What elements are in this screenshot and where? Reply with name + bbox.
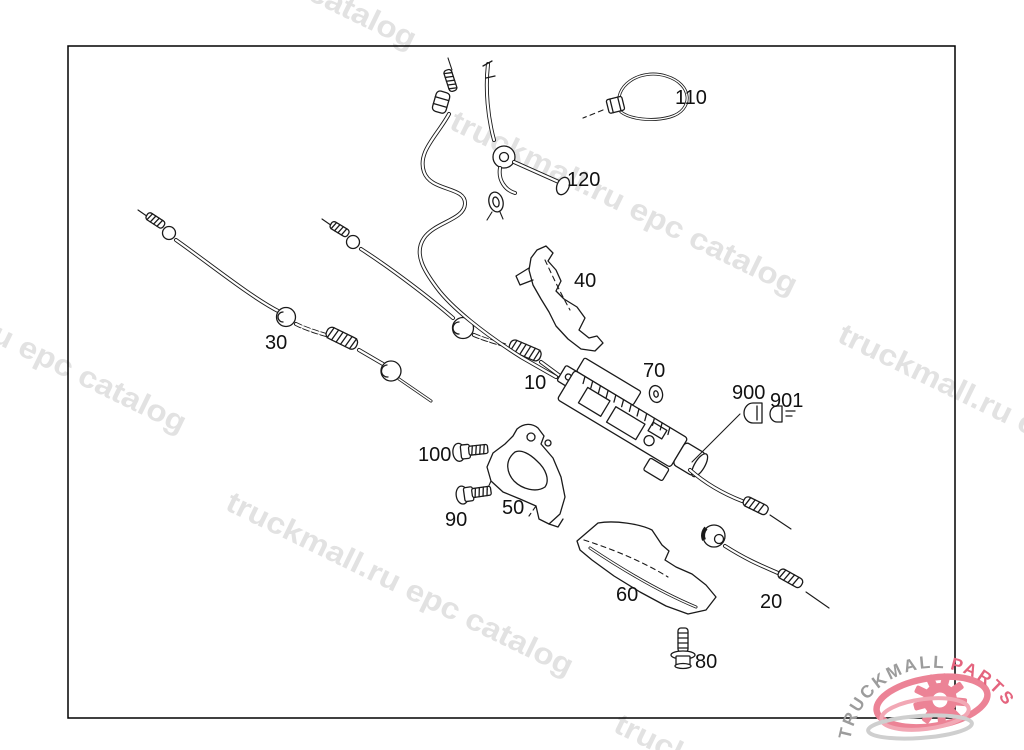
part-label-60[interactable]: 60 [616,584,638,606]
part-label-100[interactable]: 100 [418,444,451,466]
cable-tie-110 [583,74,687,119]
bolt-90 [455,482,492,505]
bolt-100 [452,440,489,462]
part-label-10[interactable]: 10 [524,372,546,394]
bolt-80 [671,628,695,669]
cable-10 [322,219,560,376]
watermark-text: truckmall.ru epc catalog [833,318,1024,515]
watermark-layer: truckmall.ru epc catalog truckmall.ru ep… [0,0,1024,750]
bracket-40 [516,246,603,351]
part-label-40[interactable]: 40 [574,270,596,292]
part-label-30[interactable]: 30 [265,332,287,354]
part-label-900[interactable]: 900 [732,382,765,404]
parts-diagram-svg: truckmall.ru epc catalog truckmall.ru ep… [0,0,1024,750]
cable-30 [138,210,431,401]
bracket-50 [487,424,565,527]
watermark-text: truckmall.ru epc catalog [221,486,579,683]
watermark-text: truckmall.ru epc catalog [0,243,192,440]
part-label-901[interactable]: 901 [770,390,803,412]
part-label-80[interactable]: 80 [695,651,717,673]
cover-60 [577,522,716,614]
cable-rear [690,470,791,529]
part-label-90[interactable]: 90 [445,509,467,531]
part-label-110[interactable]: 110 [675,87,707,109]
part-label-70[interactable]: 70 [643,360,665,382]
epc-catalog-page: truckmall.ru epc catalog truckmall.ru ep… [0,0,1024,750]
watermark-text: truckmall.ru epc catalog [64,0,422,56]
part-label-50[interactable]: 50 [502,497,524,519]
truckmall-logo: TRUCKMALL PARTS [834,652,1019,742]
part-label-20[interactable]: 20 [760,591,782,613]
part-label-120[interactable]: 120 [567,169,600,191]
washer-70 [648,384,664,403]
